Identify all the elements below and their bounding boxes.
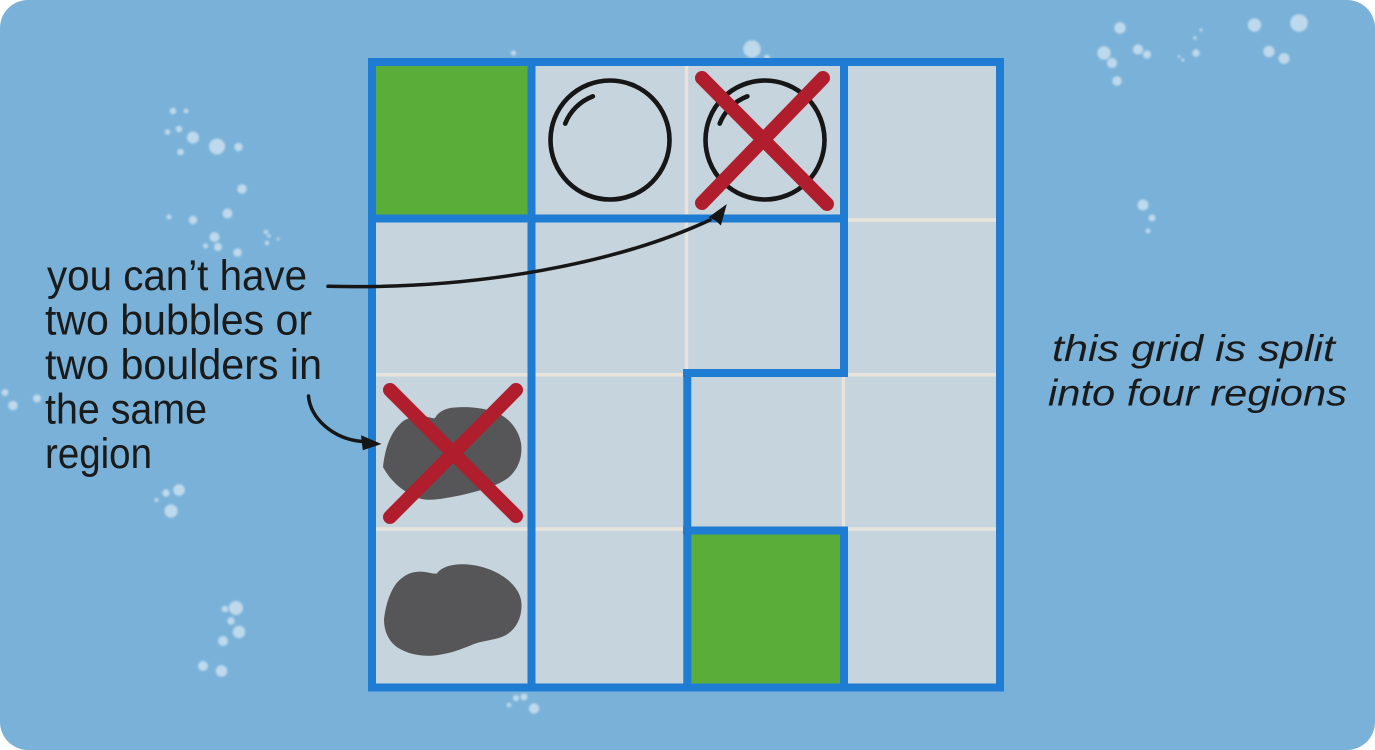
svg-text:two bubbles or: two bubbles or xyxy=(45,297,312,345)
svg-text:two boulders in: two boulders in xyxy=(45,341,322,389)
svg-text:region: region xyxy=(45,430,152,478)
svg-text:you can’t have: you can’t have xyxy=(47,252,307,300)
svg-text:into four regions: into four regions xyxy=(1048,373,1347,414)
svg-text:this grid is split: this grid is split xyxy=(1052,328,1337,369)
svg-text:the same: the same xyxy=(45,386,207,434)
